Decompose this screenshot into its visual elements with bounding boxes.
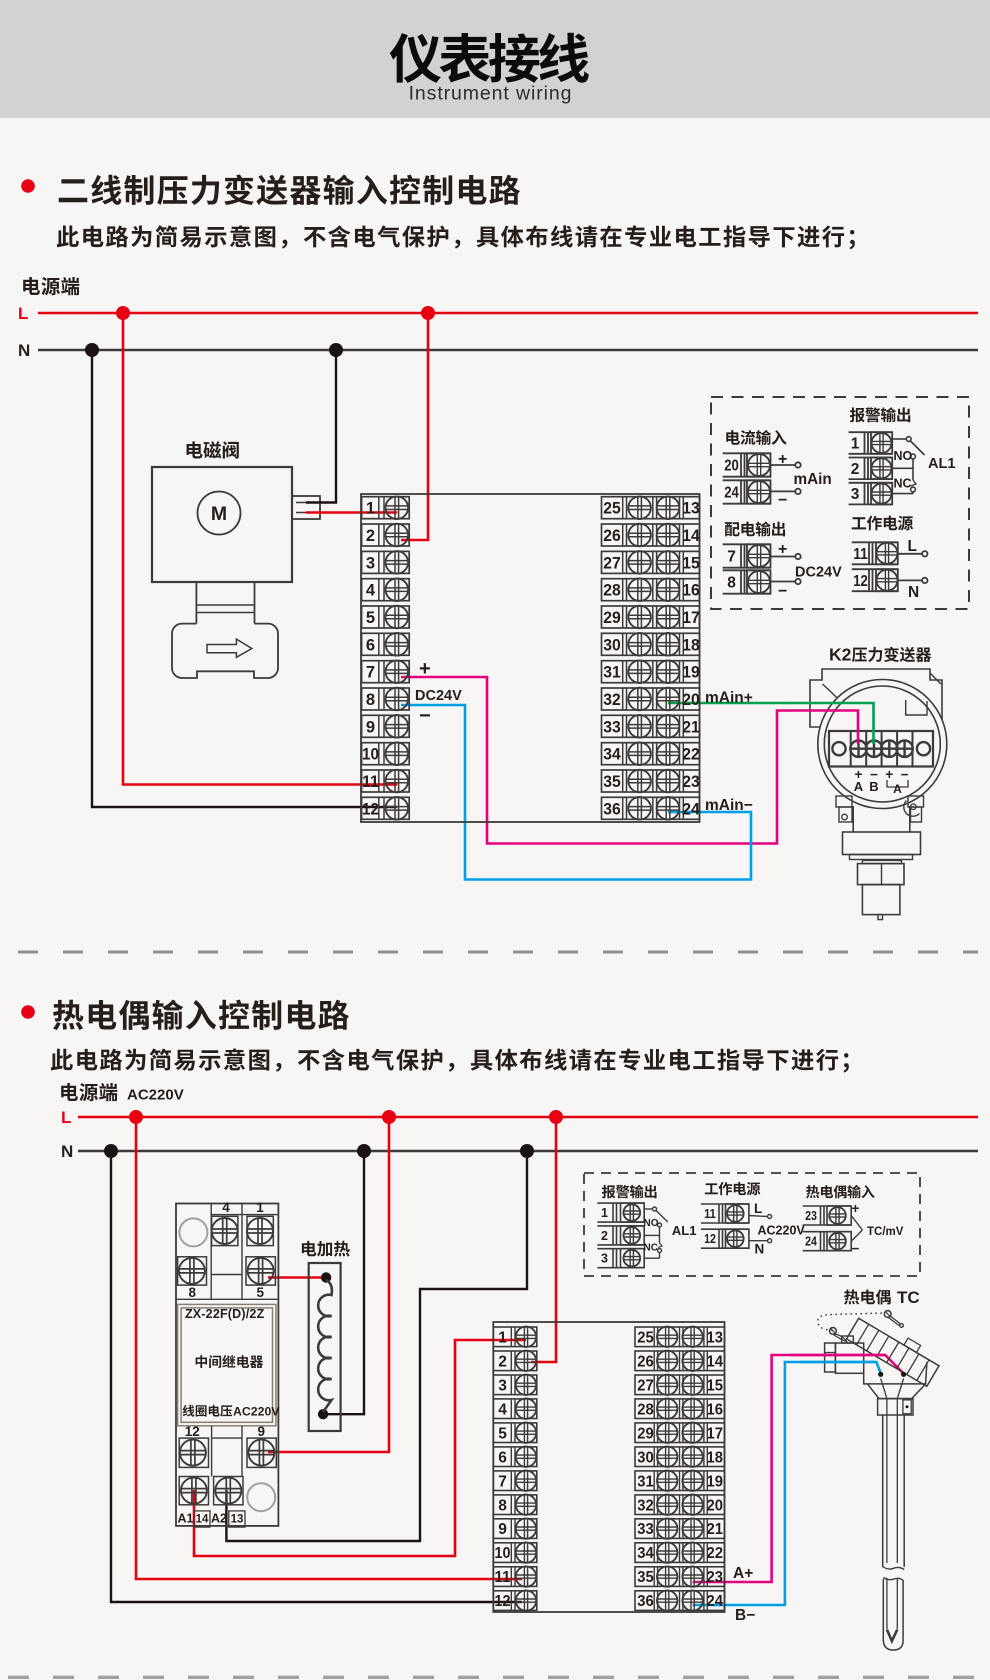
svg-text:7: 7 — [366, 664, 375, 682]
svg-text:+: + — [885, 767, 893, 782]
svg-text:33: 33 — [603, 718, 621, 736]
svg-text:14: 14 — [682, 527, 700, 545]
svg-text:L: L — [61, 1108, 71, 1127]
svg-text:6: 6 — [498, 1449, 507, 1466]
svg-text:23: 23 — [707, 1569, 724, 1586]
svg-text:9: 9 — [498, 1521, 507, 1538]
svg-text:36: 36 — [637, 1593, 654, 1610]
svg-text:−: − — [852, 1241, 860, 1256]
svg-text:19: 19 — [682, 664, 700, 682]
svg-text:8: 8 — [189, 1285, 197, 1300]
svg-text:7: 7 — [498, 1473, 507, 1490]
svg-text:5: 5 — [256, 1285, 264, 1300]
svg-text:1: 1 — [366, 500, 375, 518]
svg-text:AC220V: AC220V — [233, 1405, 280, 1419]
svg-text:−: − — [901, 767, 909, 782]
svg-text:mAin+: mAin+ — [705, 690, 753, 707]
svg-text:AL1: AL1 — [672, 1223, 697, 1238]
svg-text:1: 1 — [498, 1329, 507, 1346]
svg-text:25: 25 — [603, 500, 621, 518]
svg-text:27: 27 — [603, 554, 621, 572]
svg-text:16: 16 — [682, 582, 700, 600]
svg-text:3: 3 — [601, 1252, 608, 1266]
svg-text:A2: A2 — [211, 1512, 227, 1526]
svg-text:NC: NC — [894, 477, 912, 491]
svg-text:29: 29 — [603, 609, 621, 627]
svg-text:15: 15 — [682, 554, 700, 572]
svg-text:18: 18 — [682, 636, 700, 654]
svg-text:22: 22 — [707, 1545, 724, 1562]
svg-text:30: 30 — [603, 636, 621, 654]
svg-text:B: B — [869, 779, 878, 794]
svg-text:35: 35 — [637, 1569, 654, 1586]
svg-text:26: 26 — [637, 1353, 654, 1370]
svg-text:2: 2 — [366, 527, 375, 545]
svg-text:18: 18 — [707, 1449, 724, 1466]
svg-text:25: 25 — [637, 1329, 654, 1346]
svg-text:32: 32 — [637, 1497, 654, 1514]
svg-text:−: − — [419, 705, 431, 727]
svg-text:11: 11 — [704, 1207, 716, 1221]
svg-text:8: 8 — [498, 1497, 507, 1514]
svg-text:12: 12 — [853, 573, 868, 590]
svg-text:5: 5 — [366, 609, 375, 627]
svg-text:B−: B− — [735, 1607, 755, 1624]
svg-text:AC220V: AC220V — [758, 1224, 806, 1238]
svg-text:TC/mV: TC/mV — [867, 1226, 904, 1238]
svg-text:26: 26 — [603, 527, 621, 545]
svg-text:34: 34 — [637, 1545, 654, 1562]
svg-text:23: 23 — [805, 1209, 817, 1223]
svg-text:21: 21 — [682, 718, 700, 736]
svg-text:22: 22 — [682, 746, 700, 764]
svg-text:mAin: mAin — [794, 471, 832, 488]
svg-text:16: 16 — [707, 1401, 724, 1418]
svg-text:N: N — [18, 341, 30, 360]
svg-text:9: 9 — [257, 1424, 265, 1439]
svg-text:15: 15 — [707, 1377, 724, 1394]
svg-text:−: − — [778, 492, 787, 509]
svg-text:NO: NO — [644, 1218, 659, 1229]
svg-text:17: 17 — [682, 609, 700, 627]
svg-text:11: 11 — [362, 773, 379, 791]
svg-text:1: 1 — [601, 1206, 608, 1220]
svg-text:+: + — [852, 1201, 860, 1216]
svg-text:24: 24 — [682, 800, 700, 818]
svg-text:32: 32 — [603, 691, 621, 709]
svg-text:8: 8 — [727, 575, 736, 592]
svg-text:1: 1 — [256, 1200, 264, 1215]
svg-text:Instrument wiring: Instrument wiring — [409, 83, 573, 105]
svg-text:3: 3 — [851, 486, 860, 503]
svg-text:3: 3 — [498, 1377, 507, 1394]
svg-text:N: N — [61, 1142, 73, 1161]
svg-text:33: 33 — [637, 1521, 654, 1538]
svg-text:20: 20 — [682, 691, 700, 709]
svg-text:4: 4 — [498, 1401, 507, 1418]
svg-text:13: 13 — [707, 1329, 724, 1346]
svg-text:2: 2 — [601, 1229, 608, 1243]
svg-text:6: 6 — [366, 636, 375, 654]
svg-text:14: 14 — [196, 1514, 209, 1526]
svg-text:20: 20 — [724, 458, 739, 475]
svg-text:1: 1 — [851, 436, 860, 453]
svg-text:14: 14 — [707, 1353, 724, 1370]
svg-text:30: 30 — [637, 1449, 654, 1466]
svg-text:L: L — [18, 304, 28, 323]
svg-text:28: 28 — [637, 1401, 654, 1418]
svg-text:12: 12 — [362, 800, 379, 818]
svg-text:24: 24 — [805, 1235, 817, 1249]
svg-text:A+: A+ — [733, 1565, 753, 1582]
svg-text:20: 20 — [707, 1497, 724, 1514]
svg-text:12: 12 — [704, 1232, 716, 1246]
svg-text:L: L — [754, 1201, 762, 1216]
svg-text:N: N — [755, 1242, 765, 1257]
svg-text:+: + — [419, 658, 431, 680]
svg-text:17: 17 — [707, 1425, 724, 1442]
svg-text:NC: NC — [644, 1243, 658, 1254]
svg-text:2: 2 — [851, 461, 860, 478]
svg-text:28: 28 — [603, 582, 621, 600]
svg-text:A: A — [893, 782, 902, 796]
svg-text:DC24V: DC24V — [795, 565, 842, 581]
svg-text:NO: NO — [894, 449, 913, 463]
svg-text:4: 4 — [366, 582, 376, 600]
svg-text:3: 3 — [366, 554, 375, 572]
svg-text:12: 12 — [185, 1424, 200, 1439]
svg-text:13: 13 — [231, 1514, 244, 1526]
svg-text:29: 29 — [637, 1425, 654, 1442]
svg-text:10: 10 — [495, 1545, 511, 1562]
svg-text:12: 12 — [495, 1593, 511, 1610]
svg-text:L: L — [908, 538, 917, 555]
svg-text:DC24V: DC24V — [415, 688, 462, 704]
svg-text:11: 11 — [853, 546, 868, 563]
svg-text:24: 24 — [724, 485, 739, 502]
svg-text:19: 19 — [707, 1473, 724, 1490]
svg-text:AL1: AL1 — [928, 456, 955, 472]
svg-text:31: 31 — [603, 664, 621, 682]
svg-text:mAin−: mAin− — [705, 797, 753, 814]
svg-text:2: 2 — [498, 1353, 507, 1370]
svg-text:27: 27 — [637, 1377, 654, 1394]
svg-text:A: A — [854, 779, 864, 794]
svg-text:10: 10 — [362, 746, 379, 764]
svg-text:21: 21 — [707, 1521, 724, 1538]
svg-text:13: 13 — [682, 500, 700, 518]
svg-text:36: 36 — [603, 800, 621, 818]
svg-text:4: 4 — [222, 1200, 230, 1215]
svg-text:8: 8 — [366, 691, 375, 709]
svg-text:11: 11 — [495, 1569, 511, 1586]
svg-text:34: 34 — [603, 746, 621, 764]
svg-text:24: 24 — [707, 1593, 724, 1610]
svg-text:−: − — [778, 583, 787, 600]
svg-text:23: 23 — [682, 773, 700, 791]
svg-text:N: N — [908, 584, 919, 601]
svg-text:9: 9 — [366, 718, 375, 736]
svg-text:ZX-22F(D)/2Z: ZX-22F(D)/2Z — [185, 1307, 265, 1321]
svg-text:TC: TC — [897, 1288, 920, 1307]
svg-text:7: 7 — [727, 549, 736, 566]
svg-text:AC220V: AC220V — [127, 1087, 184, 1104]
svg-text:+: + — [778, 541, 787, 558]
svg-text:35: 35 — [603, 773, 621, 791]
svg-text:K2: K2 — [829, 645, 852, 665]
svg-text:M: M — [211, 503, 227, 525]
svg-text:31: 31 — [637, 1473, 654, 1490]
svg-text:A1: A1 — [178, 1512, 194, 1526]
svg-text:5: 5 — [498, 1425, 507, 1442]
